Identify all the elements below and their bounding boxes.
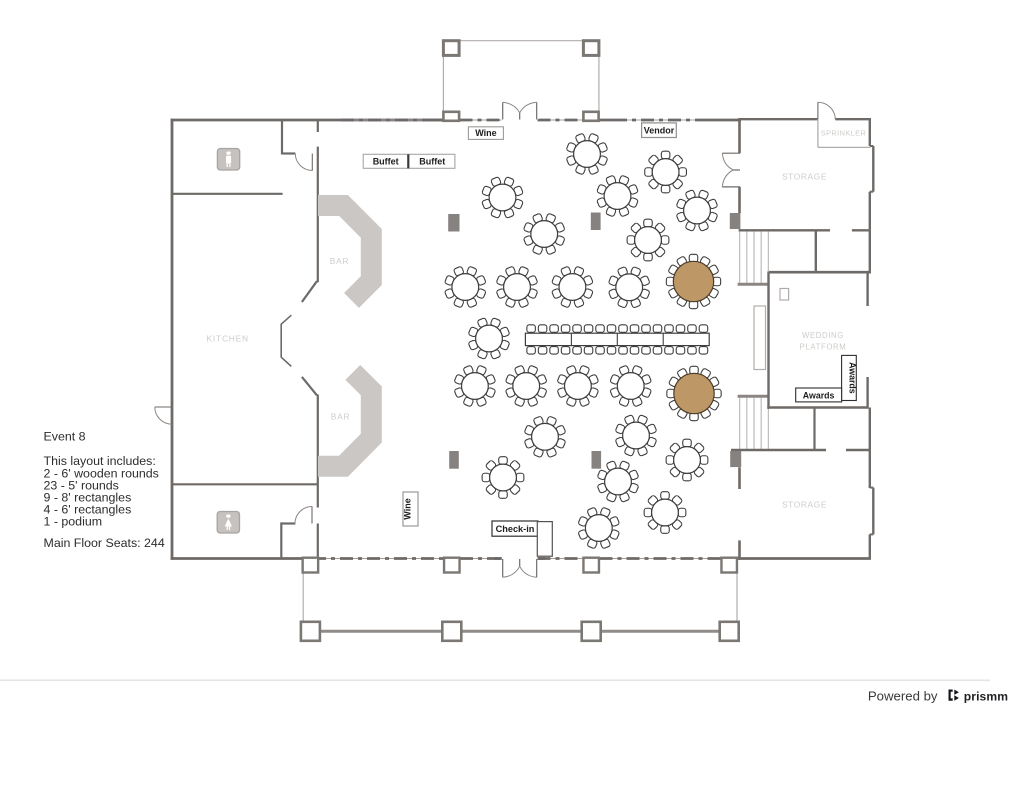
svg-text:1 - podium: 1 - podium: [44, 514, 103, 528]
svg-text:STORAGE: STORAGE: [782, 500, 827, 510]
svg-text:prismm: prismm: [964, 689, 1008, 703]
svg-text:Wine: Wine: [475, 128, 496, 138]
svg-text:Wine: Wine: [403, 498, 413, 519]
svg-text:Awards: Awards: [803, 390, 835, 400]
svg-text:STORAGE: STORAGE: [782, 171, 827, 181]
svg-text:Vendor: Vendor: [644, 126, 675, 136]
svg-text:Awards: Awards: [847, 362, 857, 394]
svg-text:WEDDING: WEDDING: [802, 331, 844, 340]
svg-text:PLATFORM: PLATFORM: [800, 342, 847, 351]
svg-text:BAR: BAR: [331, 412, 351, 422]
svg-text:SPRINKLER: SPRINKLER: [821, 128, 867, 137]
svg-text:Event 8: Event 8: [44, 430, 86, 444]
svg-text:Powered by: Powered by: [868, 689, 938, 704]
svg-text:Buffet: Buffet: [373, 157, 399, 167]
svg-text:Check-in: Check-in: [496, 524, 535, 534]
svg-text:BAR: BAR: [330, 256, 350, 266]
svg-text:Buffet: Buffet: [419, 157, 445, 167]
svg-text:KITCHEN: KITCHEN: [207, 334, 249, 344]
svg-text:Main Floor Seats: 244: Main Floor Seats: 244: [44, 536, 165, 550]
